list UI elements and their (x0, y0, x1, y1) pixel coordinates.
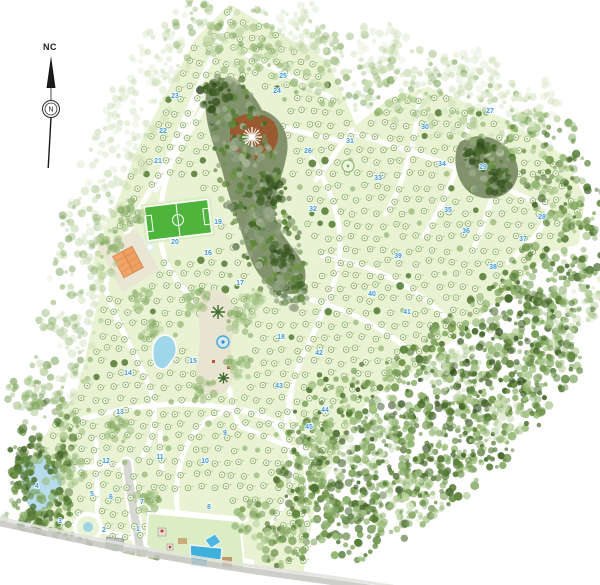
master-plan-map: 1234567891011121314151617181920212223242… (0, 0, 600, 585)
compass-top-label: NC (43, 42, 57, 52)
section-number: 16 (204, 250, 212, 257)
section-number: 33 (374, 175, 382, 182)
section-number: 44 (321, 407, 329, 414)
section-number: 45 (305, 424, 313, 431)
section-number: 43 (275, 383, 283, 390)
section-number: 4 (35, 483, 39, 490)
section-number: 19 (214, 219, 222, 226)
section-number: 25 (279, 73, 287, 80)
section-number: 14 (124, 370, 132, 377)
section-number: 40 (368, 291, 376, 298)
section-number: 17 (236, 280, 244, 287)
section-number: 12 (102, 458, 110, 465)
section-number: 13 (116, 409, 124, 416)
road (160, 432, 162, 470)
section-number: 18 (277, 334, 285, 341)
section-number: 2 (102, 527, 106, 534)
north-compass-icon: NC N (43, 42, 60, 168)
section-number: 10 (201, 458, 209, 465)
section-number: 28 (538, 214, 546, 221)
section-number: 21 (154, 158, 162, 165)
section-number: 23 (171, 93, 179, 100)
section-number: 30 (421, 124, 429, 131)
section-number: 38 (489, 264, 497, 271)
section-number: 24 (273, 88, 281, 95)
section-number: 29 (479, 164, 487, 171)
section-number: 37 (519, 236, 527, 243)
section-number: 20 (171, 239, 179, 246)
section-number: 34 (438, 161, 446, 168)
section-number: 9 (223, 430, 227, 437)
section-number: 26 (304, 148, 312, 155)
section-number: 31 (346, 138, 354, 145)
section-number: 5 (90, 491, 94, 498)
section-number: 8 (207, 504, 211, 511)
mini-roundabout (342, 160, 354, 172)
section-number: 32 (309, 206, 317, 213)
site-plan-canvas: 1234567891011121314151617181920212223242… (0, 0, 600, 585)
section-number: 39 (394, 253, 402, 260)
compass-north-label: N (48, 107, 53, 114)
section-number: 41 (403, 309, 411, 316)
section-number: 6 (109, 494, 113, 501)
section-number: 15 (189, 358, 197, 365)
section-number: 35 (444, 207, 452, 214)
soccer-field (141, 196, 215, 244)
section-number: 1 (136, 526, 140, 533)
section-number: 11 (156, 454, 164, 461)
section-number: 7 (140, 499, 144, 506)
section-number: 3 (58, 518, 62, 525)
section-number: 22 (159, 128, 167, 135)
section-number: 27 (486, 108, 494, 115)
landmark-starburst-icon (242, 127, 262, 147)
section-number: 36 (462, 228, 470, 235)
section-number: 42 (315, 350, 323, 357)
